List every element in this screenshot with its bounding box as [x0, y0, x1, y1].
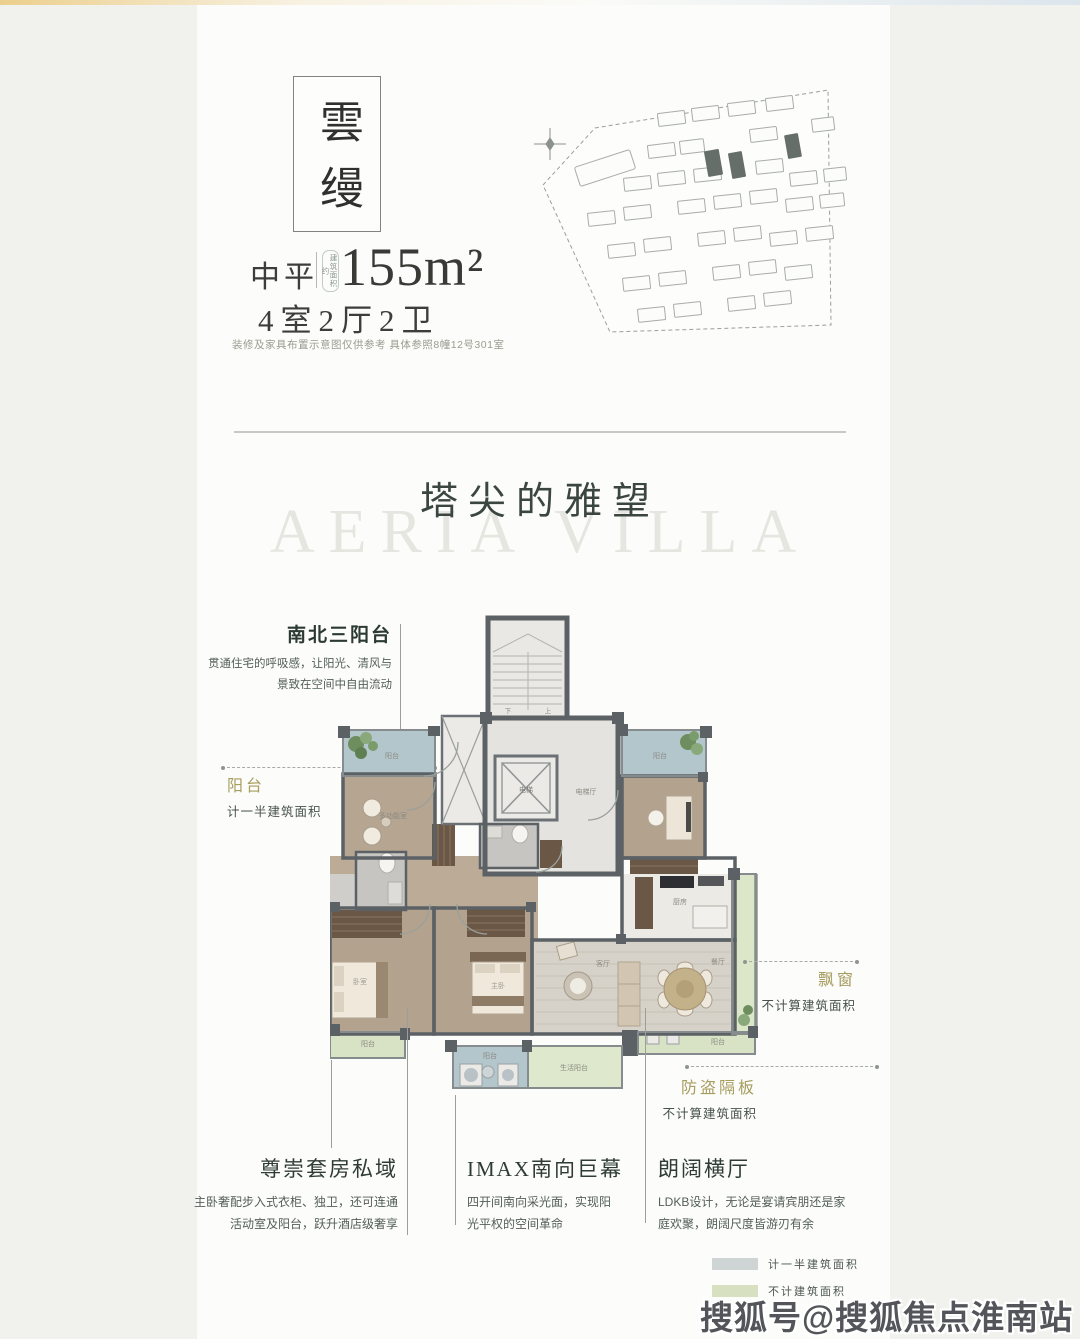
feature-line: 四开间南向采光面，实现阳	[467, 1191, 623, 1213]
section-divider	[234, 431, 846, 433]
callout-note: 不计算建筑面积	[761, 995, 856, 1014]
brand-box: 雲缦	[293, 76, 381, 232]
svg-text:餐厅: 餐厅	[711, 957, 725, 966]
svg-text:阳台: 阳台	[653, 751, 667, 760]
svg-text:生活阳台: 生活阳台	[560, 1063, 588, 1072]
svg-text:下: 下	[505, 707, 512, 715]
svg-text:卧室: 卧室	[353, 977, 367, 986]
callout-label: 防盗隔板	[662, 1074, 757, 1098]
top-edge-strip	[0, 0, 1080, 5]
legend-swatch-half-area	[712, 1258, 758, 1270]
callout-note: 不计算建筑面积	[662, 1103, 757, 1122]
svg-text:主卧: 主卧	[491, 981, 505, 990]
area-value: 155m²	[340, 236, 484, 298]
floor-plan: 阳台 阳台 多功能室 电梯 电梯厅 厨房 客厅 餐厅 卧室 主卧 阳台 阳台 生…	[330, 612, 770, 1094]
brand-title: 雲缦	[305, 77, 369, 231]
svg-text:电梯厅: 电梯厅	[576, 787, 597, 796]
feature-line: 光平权的空间革命	[467, 1213, 623, 1235]
disclaimer-text: 装修及家具布置示意图仅供参考 具体参照8幢12号301室	[232, 337, 504, 352]
feature-imax: IMAX南向巨幕 四开间南向采光面，实现阳 光平权的空间革命	[467, 1153, 623, 1235]
feature-line: LDKB设计，无论是宴请宾朋还是家	[658, 1191, 845, 1213]
unit-type-label: 中平	[250, 252, 318, 296]
leader-line	[407, 1008, 408, 1235]
site-plan	[528, 80, 863, 358]
callout-security-panel: 防盗隔板 不计算建筑面积	[662, 1074, 757, 1122]
feature-title: IMAX南向巨幕	[467, 1153, 623, 1183]
svg-text:厨房: 厨房	[673, 897, 687, 906]
svg-text:上: 上	[545, 706, 552, 715]
hero-title: 塔尖的雅望	[0, 470, 1080, 525]
callout-label: 阳台	[227, 772, 322, 796]
feature-line: 活动室及阳台，跃升酒店级奢享	[194, 1213, 398, 1235]
legend-row: 计一半建筑面积	[712, 1256, 859, 1272]
svg-text:电梯: 电梯	[519, 785, 533, 794]
feature-title: 朗阔横厅	[658, 1153, 845, 1183]
brochure-page: 雲缦 中平 建筑面积约 155m² 4室2厅2卫 装修及家具布置示意图仅供参考 …	[0, 0, 1080, 1339]
svg-text:多功能室: 多功能室	[379, 811, 407, 820]
area-stamp: 建筑面积约	[322, 250, 339, 292]
rooms-label: 4室2厅2卫	[258, 295, 440, 340]
svg-text:阳台: 阳台	[361, 1039, 375, 1048]
leader-line	[331, 1060, 332, 1148]
leader-dash	[686, 1066, 878, 1067]
sohu-watermark: 搜狐号@搜狐焦点淮南站	[700, 1291, 1073, 1339]
feature-suite: 尊崇套房私域 主卧奢配步入式衣柜、独卫，还可连通 活动室及阳台，跃升酒店级奢享	[194, 1153, 398, 1235]
feature-hall: 朗阔横厅 LDKB设计，无论是宴请宾朋还是家 庭欢聚，朗阔尺度皆游刃有余	[658, 1153, 845, 1235]
callout-bay-window: 飘窗 不计算建筑面积	[761, 966, 856, 1014]
feature-title: 尊崇套房私域	[194, 1153, 398, 1183]
callout-label: 飘窗	[761, 966, 856, 990]
leader-line	[645, 1008, 646, 1223]
svg-text:阳台: 阳台	[711, 1037, 725, 1046]
legend-label: 计一半建筑面积	[768, 1256, 859, 1272]
spec-divider	[316, 252, 317, 288]
feature-line: 主卧奢配步入式衣柜、独卫，还可连通	[194, 1191, 398, 1213]
svg-text:阳台: 阳台	[385, 751, 399, 760]
callout-note: 计一半建筑面积	[227, 801, 322, 820]
svg-text:阳台: 阳台	[483, 1051, 497, 1060]
feature-line: 庭欢聚，朗阔尺度皆游刃有余	[658, 1213, 845, 1235]
callout-balcony: 阳台 计一半建筑面积	[227, 772, 322, 820]
svg-text:客厅: 客厅	[596, 959, 610, 968]
leader-line	[455, 1095, 456, 1225]
compass-icon	[534, 128, 566, 160]
leader-dash	[744, 961, 858, 962]
